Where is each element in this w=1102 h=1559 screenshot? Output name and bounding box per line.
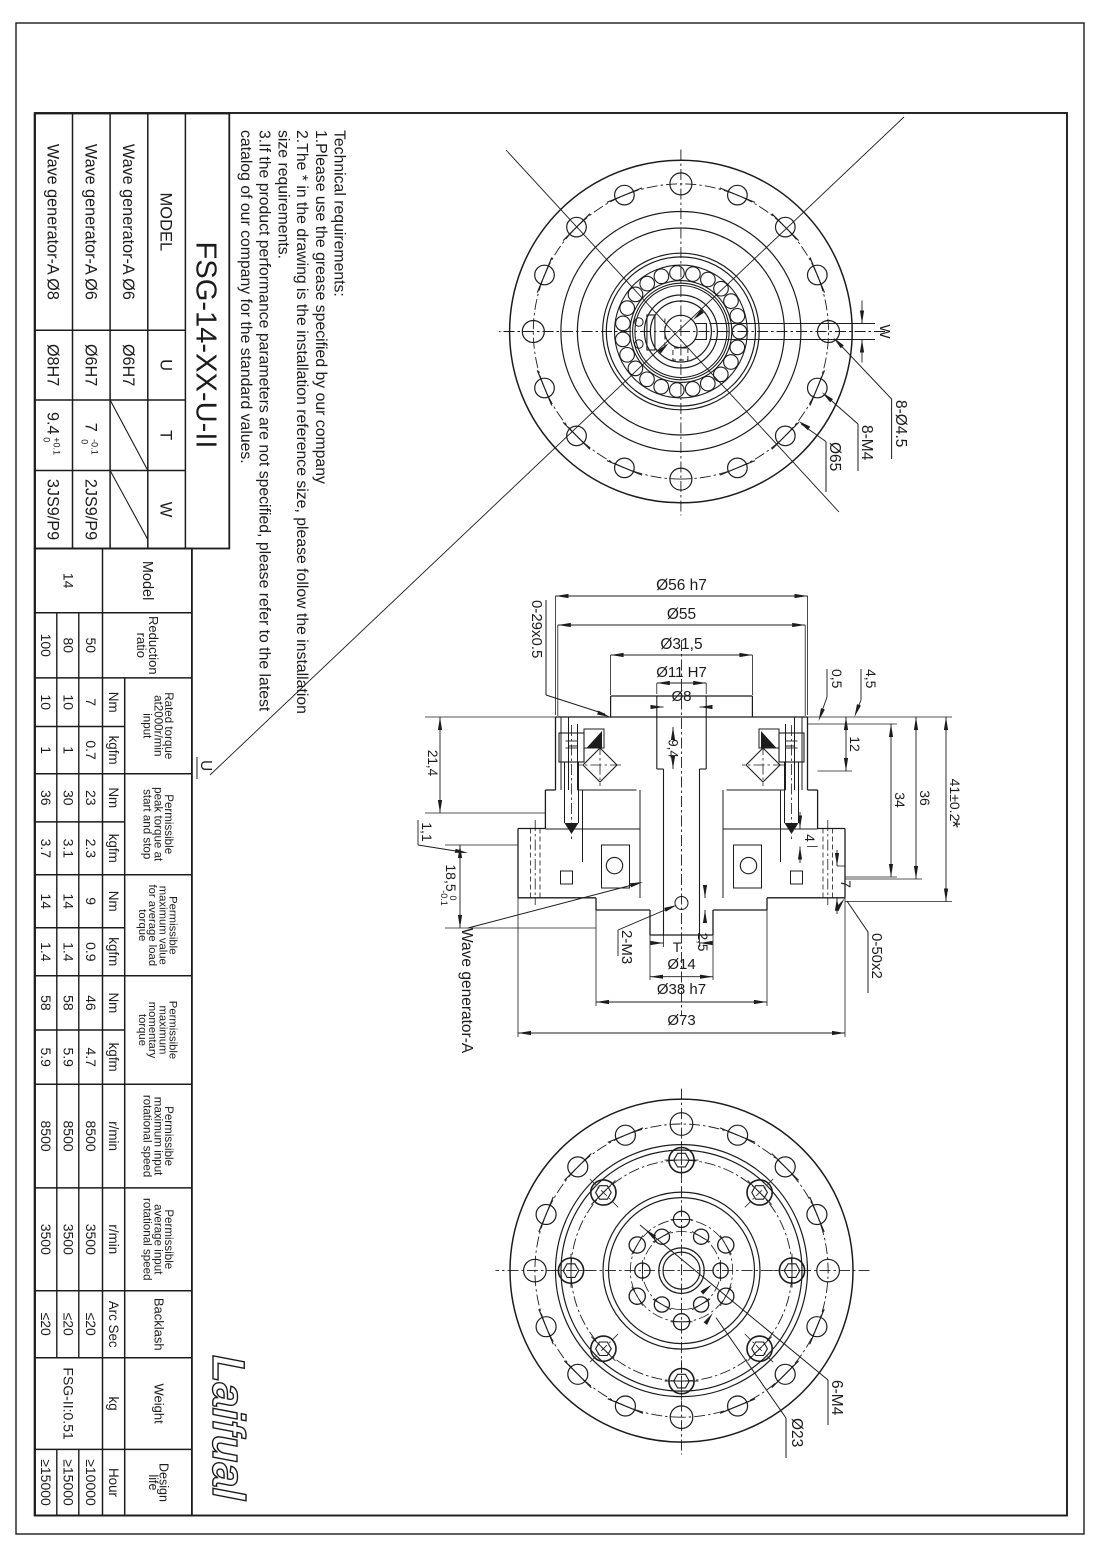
svg-text:3.7: 3.7 [38, 839, 54, 859]
svg-text:4.7: 4.7 [83, 1047, 99, 1067]
svg-text:Backlash: Backlash [151, 1298, 166, 1351]
svg-text:≤20: ≤20 [83, 1313, 99, 1336]
svg-text:Ø65: Ø65 [826, 442, 843, 471]
svg-text:catalog of our company for the: catalog of our company for the standard … [237, 130, 254, 464]
svg-text:0: 0 [42, 437, 52, 442]
svg-text:Wave generator-A Ø8: Wave generator-A Ø8 [44, 144, 62, 300]
svg-text:Ø73: Ø73 [667, 1012, 695, 1029]
svg-text:80: 80 [60, 638, 76, 654]
svg-text:7: 7 [83, 698, 99, 706]
svg-text:MODEL: MODEL [157, 193, 175, 252]
svg-text:-0.1: -0.1 [439, 890, 449, 906]
svg-text:58: 58 [60, 995, 76, 1011]
svg-text:+0.1: +0.1 [52, 437, 62, 455]
svg-text:1.4: 1.4 [38, 942, 54, 962]
svg-text:10: 10 [38, 694, 54, 710]
svg-text:34: 34 [892, 792, 908, 808]
svg-text:30: 30 [60, 790, 76, 806]
svg-text:Nm: Nm [106, 891, 121, 912]
svg-text:Technical requirements:: Technical requirements: [331, 130, 348, 297]
svg-text:W: W [876, 324, 893, 339]
svg-text:Ø6H7: Ø6H7 [119, 344, 137, 386]
svg-text:0.9: 0.9 [83, 942, 99, 962]
svg-text:Hour: Hour [106, 1468, 121, 1498]
svg-text:Ø56 h7: Ø56 h7 [656, 577, 707, 594]
svg-text:≤20: ≤20 [38, 1313, 54, 1336]
svg-text:U: U [197, 760, 214, 771]
svg-text:5.9: 5.9 [60, 1047, 76, 1067]
svg-text:T: T [673, 939, 682, 955]
svg-text:46: 46 [83, 995, 99, 1011]
svg-text:Weight: Weight [151, 1383, 166, 1424]
svg-text:1,1: 1,1 [419, 822, 435, 842]
svg-text:kgfm: kgfm [106, 937, 121, 966]
svg-text:*: * [941, 820, 963, 828]
svg-text:2.3: 2.3 [83, 839, 99, 859]
svg-text:≤20: ≤20 [60, 1313, 76, 1336]
svg-text:9,4: 9,4 [666, 739, 681, 758]
svg-text:-0.1: -0.1 [89, 439, 99, 455]
svg-text:7: 7 [81, 423, 99, 432]
svg-text:torque: torque [136, 1014, 148, 1046]
svg-text:8500: 8500 [60, 1121, 76, 1152]
svg-text:0: 0 [79, 439, 89, 444]
svg-text:6-M4: 6-M4 [828, 1380, 845, 1416]
svg-text:4: 4 [802, 834, 818, 842]
svg-text:Ø8: Ø8 [671, 688, 691, 705]
svg-text:Model: Model [139, 561, 155, 601]
svg-text:1: 1 [60, 746, 76, 754]
svg-text:Wave generator-A Ø6: Wave generator-A Ø6 [119, 144, 137, 300]
svg-text:21,4: 21,4 [425, 750, 440, 777]
svg-text:9.4: 9.4 [44, 412, 62, 435]
svg-text:2.The * in the drawing is the: 2.The * in the drawing is the installati… [293, 130, 310, 714]
svg-text:Ø11 H7: Ø11 H7 [656, 664, 707, 681]
svg-text:0,5: 0,5 [829, 669, 845, 689]
svg-text:7: 7 [838, 880, 854, 888]
svg-text:torque: torque [136, 909, 148, 941]
svg-text:≥15000: ≥15000 [38, 1459, 54, 1506]
svg-text:14: 14 [38, 893, 54, 909]
svg-text:Wave generator-A Ø6: Wave generator-A Ø6 [81, 144, 99, 300]
svg-text:size requirements.: size requirements. [274, 130, 291, 259]
svg-text:8-M4: 8-M4 [858, 425, 875, 461]
svg-text:3500: 3500 [38, 1224, 54, 1255]
svg-text:12: 12 [847, 736, 863, 752]
svg-text:Nm: Nm [106, 992, 121, 1013]
svg-text:1.Please use the grease specif: 1.Please use the grease specified by our… [312, 130, 329, 484]
svg-text:3JS9/P9: 3JS9/P9 [44, 479, 62, 540]
svg-text:36: 36 [917, 790, 933, 806]
svg-text:0.7: 0.7 [83, 740, 99, 760]
svg-text:input: input [141, 713, 154, 739]
svg-text:FSG-II:0.51: FSG-II:0.51 [61, 1367, 77, 1440]
svg-text:2JS9/P9: 2JS9/P9 [81, 479, 99, 540]
svg-text:18,5: 18,5 [443, 864, 459, 891]
svg-text:Laifual: Laifual [203, 1355, 254, 1501]
svg-text:Ø23: Ø23 [788, 1418, 805, 1447]
svg-text:3.If the product performance p: 3.If the product performance parameters … [256, 130, 273, 712]
svg-text:8500: 8500 [38, 1121, 54, 1152]
svg-text:Ø8H7: Ø8H7 [44, 344, 62, 386]
svg-text:100: 100 [38, 634, 54, 658]
svg-text:Ø6H7: Ø6H7 [81, 344, 99, 386]
svg-text:5.9: 5.9 [38, 1047, 54, 1067]
svg-text:Ø55: Ø55 [667, 606, 696, 623]
svg-text:8-Ø4.5: 8-Ø4.5 [892, 400, 909, 447]
svg-text:kgfm: kgfm [106, 736, 121, 765]
svg-text:≥15000: ≥15000 [60, 1459, 76, 1506]
svg-text:0-29x0.5: 0-29x0.5 [528, 600, 545, 658]
svg-text:T: T [157, 430, 175, 440]
svg-text:ratio: ratio [134, 633, 149, 658]
svg-text:Ø38 h7: Ø38 h7 [657, 981, 706, 998]
svg-text:1.4: 1.4 [60, 942, 76, 962]
svg-text:Ø31,5: Ø31,5 [660, 636, 702, 653]
svg-text:Arc Sec: Arc Sec [106, 1301, 121, 1348]
svg-text:1: 1 [38, 746, 54, 754]
svg-text:4,5: 4,5 [863, 669, 879, 689]
svg-text:r/min: r/min [106, 1121, 121, 1151]
svg-text:0-50x2: 0-50x2 [868, 933, 885, 979]
svg-text:50: 50 [83, 638, 99, 654]
svg-text:36: 36 [38, 790, 54, 806]
svg-text:r/min: r/min [106, 1224, 121, 1254]
svg-text:10: 10 [60, 694, 76, 710]
svg-text:FSG-14-XX-U-II: FSG-14-XX-U-II [189, 242, 221, 449]
svg-text:rotational speed: rotational speed [141, 1095, 154, 1178]
svg-text:9: 9 [83, 897, 99, 905]
svg-text:W: W [157, 502, 175, 518]
svg-text:2-M3: 2-M3 [618, 930, 635, 964]
svg-text:Nm: Nm [106, 787, 121, 808]
svg-text:Ø14: Ø14 [667, 956, 695, 973]
svg-text:Wave generator-A: Wave generator-A [458, 928, 475, 1054]
svg-text:U: U [157, 359, 175, 371]
svg-text:start and stop: start and stop [141, 789, 154, 859]
svg-text:3500: 3500 [83, 1224, 99, 1255]
svg-text:kg: kg [106, 1397, 121, 1411]
svg-text:41±0.2: 41±0.2 [947, 779, 963, 822]
svg-text:23: 23 [83, 790, 99, 806]
svg-text:14: 14 [60, 893, 76, 909]
svg-text:≥10000: ≥10000 [83, 1459, 99, 1506]
svg-text:kgfm: kgfm [106, 1043, 121, 1072]
svg-text:life: life [146, 1475, 160, 1491]
svg-text:8500: 8500 [83, 1121, 99, 1152]
svg-text:rotational speed: rotational speed [141, 1198, 154, 1281]
svg-text:3.1: 3.1 [60, 839, 76, 859]
svg-text:kgfm: kgfm [106, 834, 121, 863]
svg-text:14: 14 [61, 573, 77, 589]
svg-text:3500: 3500 [60, 1224, 76, 1255]
svg-text:Nm: Nm [106, 692, 121, 713]
svg-text:58: 58 [38, 995, 54, 1011]
